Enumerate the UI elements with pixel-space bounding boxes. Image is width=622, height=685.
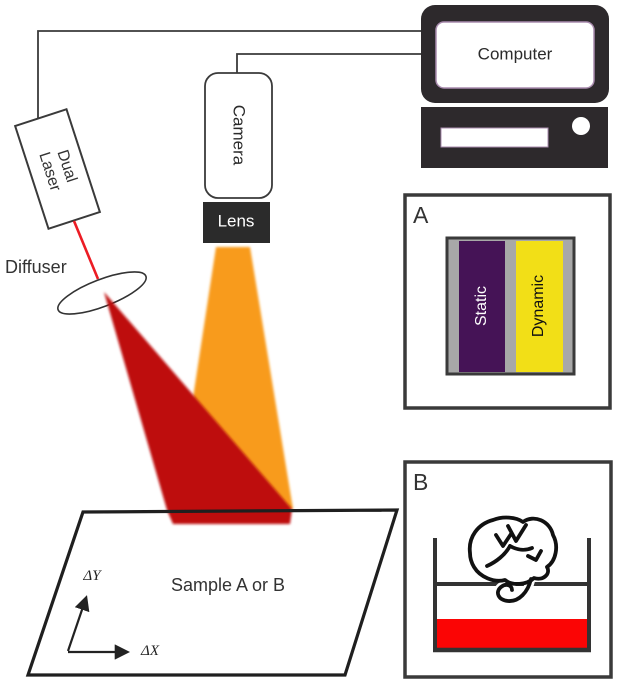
lens-label: Lens xyxy=(218,213,255,232)
axis-x-label: ΔX xyxy=(141,643,159,660)
static-region-label: Static xyxy=(473,286,491,326)
sample-label: Sample A or B xyxy=(171,576,285,596)
axis-y-arrow xyxy=(68,598,86,651)
panel-a xyxy=(405,195,610,408)
camera-label: Camera xyxy=(229,105,248,165)
computer-icon xyxy=(421,5,609,168)
experimental-setup-figure: Computer Camera Lens Dual Laser Diffuser… xyxy=(0,0,622,685)
computer-drive-slot xyxy=(441,128,548,147)
diffuser-label: Diffuser xyxy=(5,258,67,278)
brain-outline xyxy=(470,518,556,584)
laser-beam-line xyxy=(74,221,98,279)
panel-b xyxy=(405,462,611,677)
panel-a-label: A xyxy=(413,203,428,228)
liquid-fill xyxy=(437,619,587,648)
computer-label: Computer xyxy=(478,46,553,65)
camera-to-computer-wire xyxy=(237,54,422,73)
panel-b-label: B xyxy=(413,470,428,495)
computer-power-button xyxy=(572,117,590,135)
diffuser-lens-icon xyxy=(53,264,150,323)
dynamic-region-label: Dynamic xyxy=(530,275,548,337)
axis-y-label: ΔY xyxy=(83,568,100,585)
translation-axes xyxy=(68,598,127,652)
